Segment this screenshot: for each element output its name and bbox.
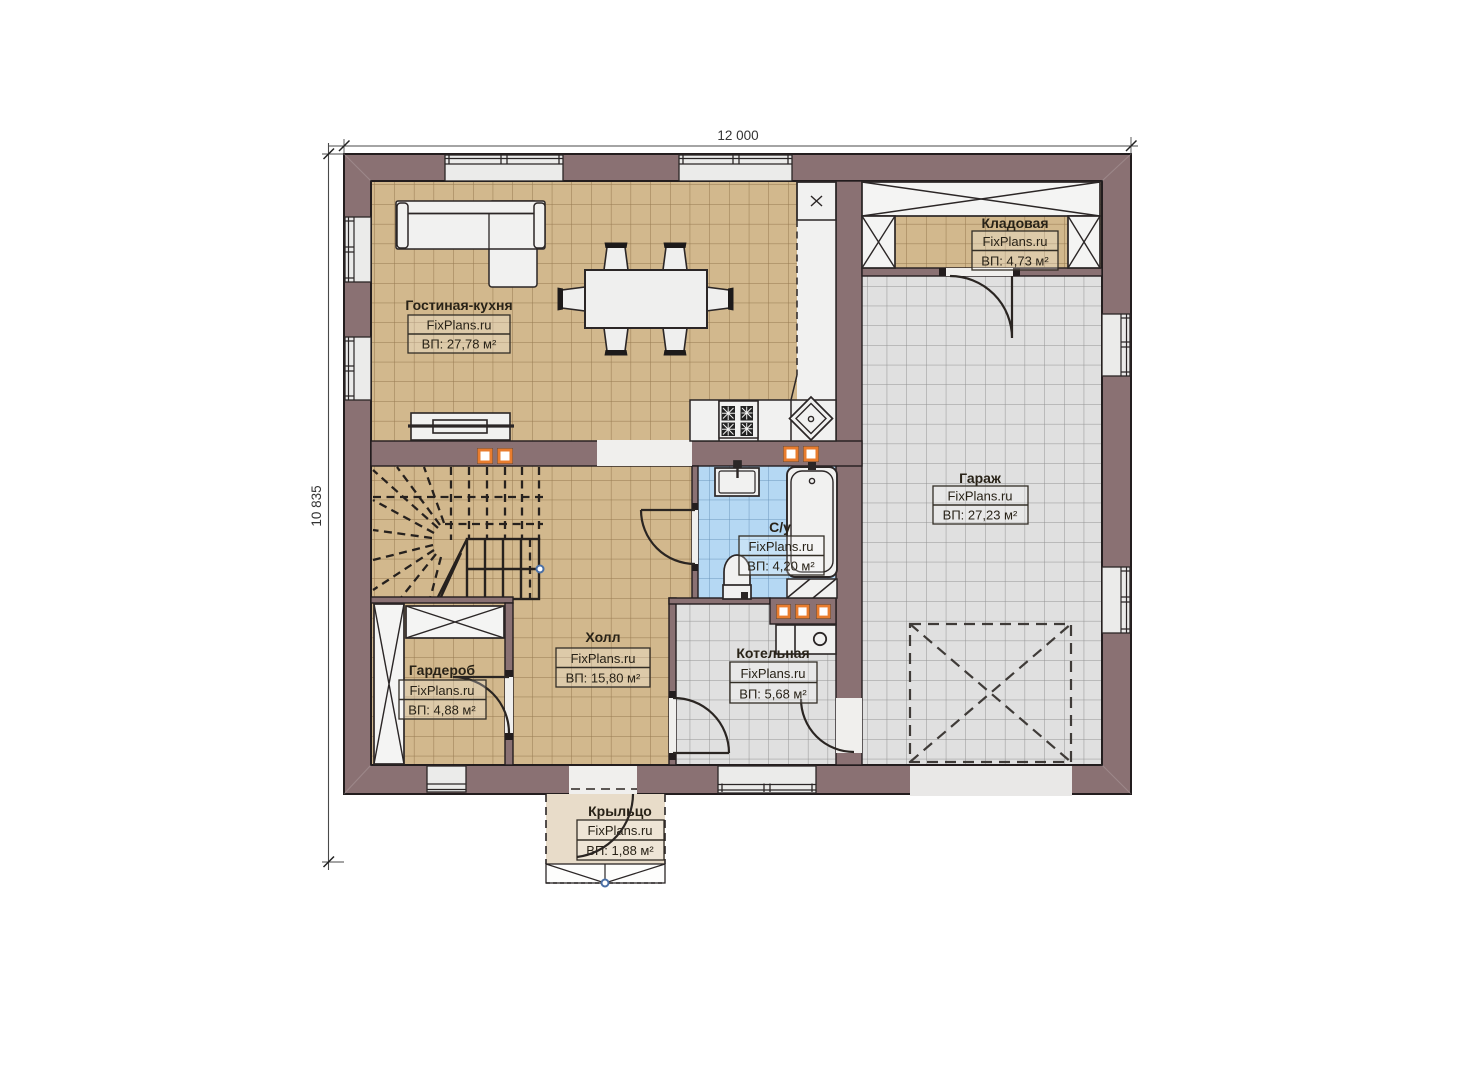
svg-text:FixPlans.ru: FixPlans.ru: [947, 489, 1012, 504]
svg-text:Котельная: Котельная: [736, 645, 809, 661]
svg-text:FixPlans.ru: FixPlans.ru: [982, 234, 1047, 249]
svg-text:FixPlans.ru: FixPlans.ru: [740, 666, 805, 681]
svg-text:Холл: Холл: [585, 629, 620, 645]
svg-text:Крыльцо: Крыльцо: [588, 803, 652, 819]
svg-text:FixPlans.ru: FixPlans.ru: [426, 318, 491, 333]
svg-text:ВП: 5,68 м²: ВП: 5,68 м²: [739, 687, 807, 702]
svg-text:ВП: 27,23 м²: ВП: 27,23 м²: [943, 508, 1018, 523]
svg-text:С/у: С/у: [769, 519, 791, 535]
svg-text:ВП: 4,20 м²: ВП: 4,20 м²: [747, 559, 815, 574]
svg-text:Гостиная-кухня: Гостиная-кухня: [405, 297, 512, 313]
svg-text:ВП: 15,80 м²: ВП: 15,80 м²: [566, 671, 641, 686]
svg-text:FixPlans.ru: FixPlans.ru: [570, 651, 635, 666]
svg-text:Гардероб: Гардероб: [409, 662, 476, 678]
svg-text:ВП: 4,88 м²: ВП: 4,88 м²: [408, 703, 476, 718]
svg-text:12 000: 12 000: [717, 128, 758, 143]
svg-text:ВП: 4,73 м²: ВП: 4,73 м²: [981, 254, 1049, 269]
svg-text:ВП: 27,78 м²: ВП: 27,78 м²: [422, 337, 497, 352]
svg-text:10 835: 10 835: [309, 485, 324, 526]
svg-text:FixPlans.ru: FixPlans.ru: [748, 539, 813, 554]
svg-text:Гараж: Гараж: [959, 470, 1002, 486]
svg-text:FixPlans.ru: FixPlans.ru: [409, 683, 474, 698]
svg-text:Кладовая: Кладовая: [981, 215, 1048, 231]
